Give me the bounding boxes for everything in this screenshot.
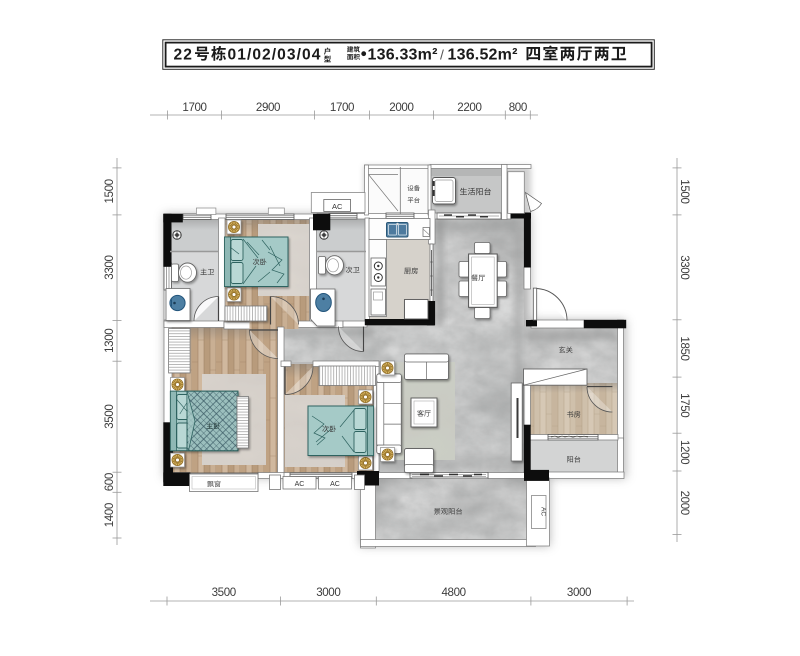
svg-text:01/02/03/04: 01/02/03/04 xyxy=(228,46,322,63)
svg-text:1700: 1700 xyxy=(330,101,354,114)
svg-text:3000: 3000 xyxy=(567,586,591,599)
svg-text:AC: AC xyxy=(540,507,547,516)
svg-text:1400: 1400 xyxy=(103,503,116,527)
svg-text:1700: 1700 xyxy=(182,101,206,114)
svg-text:1750: 1750 xyxy=(678,393,691,417)
svg-text:AC: AC xyxy=(295,481,305,488)
svg-text:1850: 1850 xyxy=(678,336,691,360)
svg-text:22: 22 xyxy=(174,46,194,63)
svg-text:3500: 3500 xyxy=(212,586,236,599)
svg-text:2000: 2000 xyxy=(389,101,413,114)
svg-text:AC: AC xyxy=(330,481,340,488)
svg-text:/: / xyxy=(440,46,444,62)
svg-text:3300: 3300 xyxy=(678,255,691,279)
svg-text:800: 800 xyxy=(509,101,527,114)
svg-text:136.52m²: 136.52m² xyxy=(448,46,518,63)
svg-text:1300: 1300 xyxy=(103,329,116,353)
svg-text:4800: 4800 xyxy=(441,586,465,599)
svg-text:2000: 2000 xyxy=(678,491,691,515)
svg-text:3500: 3500 xyxy=(103,405,116,429)
svg-text:3300: 3300 xyxy=(103,255,116,279)
svg-text:3000: 3000 xyxy=(316,586,340,599)
svg-text:1500: 1500 xyxy=(678,179,691,203)
svg-text:136.33m²: 136.33m² xyxy=(368,46,438,63)
svg-text:1500: 1500 xyxy=(103,179,116,203)
svg-text:600: 600 xyxy=(103,473,116,491)
svg-text:AC: AC xyxy=(332,202,343,211)
svg-text:2200: 2200 xyxy=(457,101,481,114)
svg-text:1200: 1200 xyxy=(678,440,691,464)
svg-text:2900: 2900 xyxy=(256,101,280,114)
